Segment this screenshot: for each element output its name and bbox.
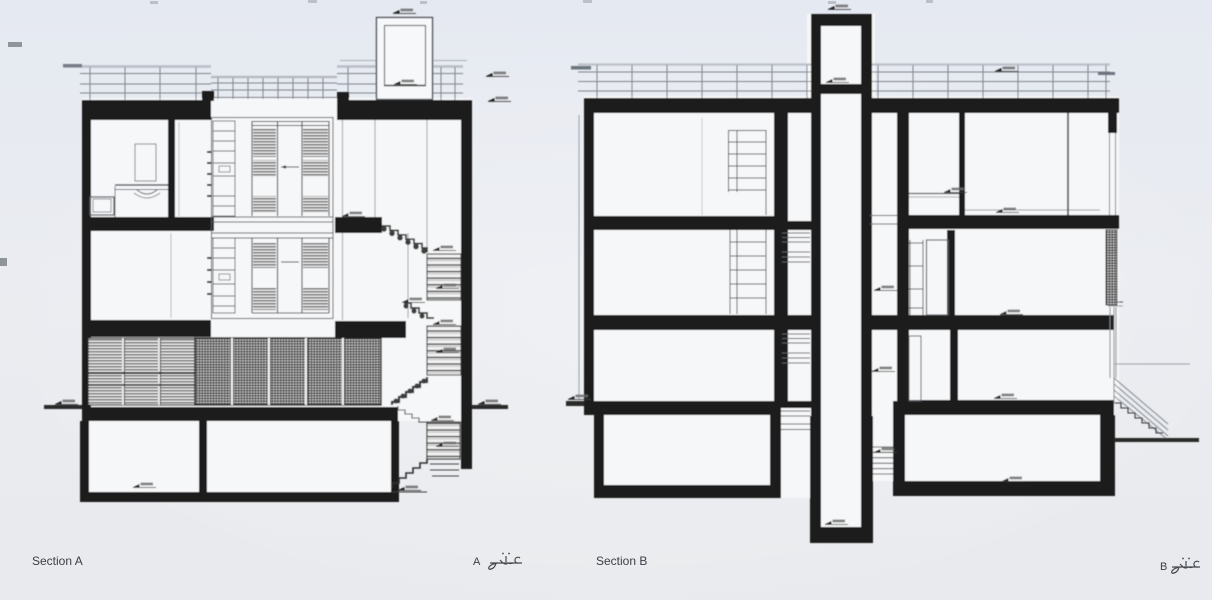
svg-text:A: A <box>473 556 481 568</box>
svg-text:B: B <box>1160 561 1167 573</box>
svg-text:Section A: Section A <box>32 554 83 568</box>
svg-text:Section B: Section B <box>596 554 647 568</box>
